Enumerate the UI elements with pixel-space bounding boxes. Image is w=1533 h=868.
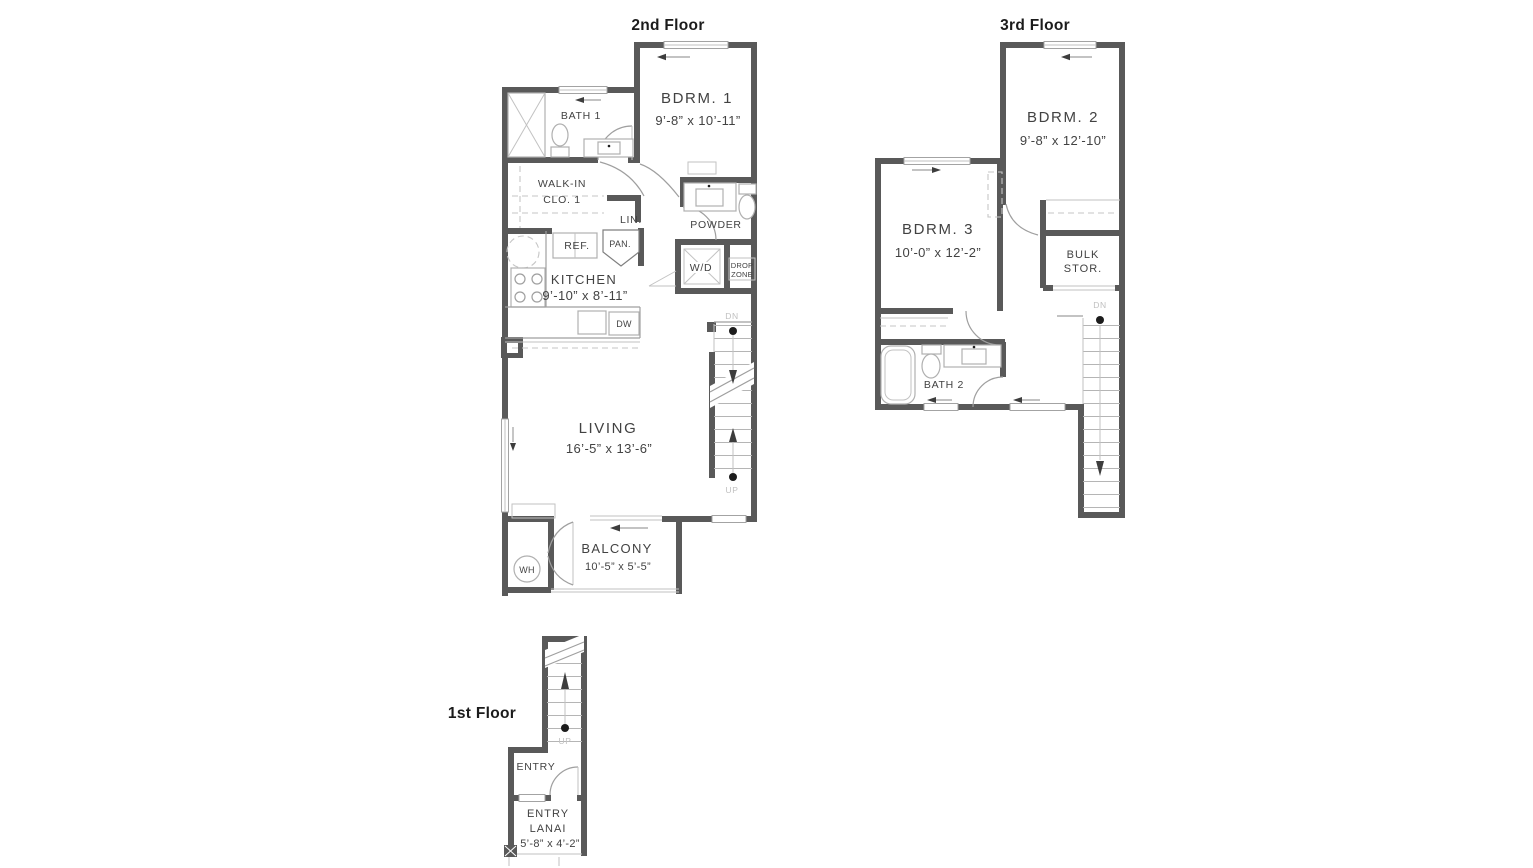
balcony-area: WH BALCONY 10’-5” x 5’-5”	[514, 541, 679, 592]
stairs-dn-label: DN	[1093, 300, 1106, 310]
dropzone-label-line1: DROP	[731, 261, 753, 270]
entry-lanai-label-line2: LANAI	[530, 823, 567, 835]
powder-room: POWDER	[684, 162, 756, 231]
entry-lanai-label-line1: ENTRY	[527, 808, 569, 820]
living-dims: 16’-5” x 13’-6”	[566, 441, 652, 456]
first-floor-plan: 1st Floor UP	[448, 634, 587, 866]
bdrm2-label: BDRM. 2	[1027, 109, 1099, 126]
bath1-fixtures: BATH 1	[508, 93, 633, 157]
water-heater-label: WH	[519, 565, 535, 575]
washer-dryer-label: W/D	[690, 262, 713, 274]
bath1-label: BATH 1	[561, 110, 601, 122]
first-floor-stairs: UP	[545, 634, 584, 746]
second-floor-title: 2nd Floor	[631, 17, 704, 34]
living-area: LIVING 16’-5” x 13’-6”	[512, 420, 652, 518]
bdrm3-dims: 10’-0” x 12’-2”	[895, 245, 981, 260]
first-floor-title: 1st Floor	[448, 705, 516, 722]
kitchen-dims: 9’-10” x 8’-11”	[542, 288, 627, 303]
linen-label: LIN.	[620, 214, 642, 226]
walkin-label-line2: CLO. 1	[543, 194, 580, 206]
bath2-label: BATH 2	[924, 379, 964, 391]
third-floor-plan: 3rd Floor	[875, 17, 1125, 518]
walkin-closet: WALK-IN CLO. 1	[512, 166, 604, 228]
second-floor-plan: 2nd Floor	[501, 17, 757, 596]
bdrm3-label: BDRM. 3	[902, 221, 974, 238]
living-label: LIVING	[579, 420, 638, 437]
pan-label: PAN.	[609, 239, 631, 249]
bulk-storage-label-line2: STOR.	[1064, 263, 1102, 275]
balcony-label: BALCONY	[581, 541, 652, 556]
floorplan-sheet: 2nd Floor	[0, 0, 1533, 868]
stairs-dn-label: DN	[725, 311, 738, 321]
entry-lanai-dims: 5’-8” x 4’-2”	[520, 838, 580, 850]
second-floor-stairs: DN UP	[710, 311, 754, 495]
ref-label: REF.	[564, 240, 590, 252]
walkin-label-line1: WALK-IN	[538, 178, 586, 190]
entry-label: ENTRY	[517, 761, 556, 773]
third-floor-title: 3rd Floor	[1000, 17, 1070, 34]
stairs-up-label: UP	[558, 736, 571, 746]
kitchen-label: KITCHEN	[551, 272, 617, 287]
laundry-area: W/D DROP ZONE	[649, 249, 755, 286]
dw-label: DW	[616, 319, 632, 329]
powder-label: POWDER	[690, 219, 741, 231]
balcony-dims: 10’-5” x 5’-5”	[585, 561, 651, 573]
bath2-fixtures: BATH 2	[881, 345, 1001, 404]
floorplan-canvas: 2nd Floor	[0, 0, 1533, 868]
bdrm1-label: BDRM. 1	[661, 90, 733, 107]
bdrm2-dims: 9’-8” x 12’-10”	[1020, 133, 1106, 148]
stairs-up-label: UP	[725, 485, 738, 495]
kitchen-area: REF. PAN. DW KITCHEN 9’-10” x 8’-11”	[505, 230, 640, 348]
dropzone-label-line2: ZONE	[731, 270, 753, 279]
bdrm1-dims: 9’-8” x 10’-11”	[655, 113, 740, 128]
bulk-storage-label-line1: BULK	[1067, 249, 1100, 261]
